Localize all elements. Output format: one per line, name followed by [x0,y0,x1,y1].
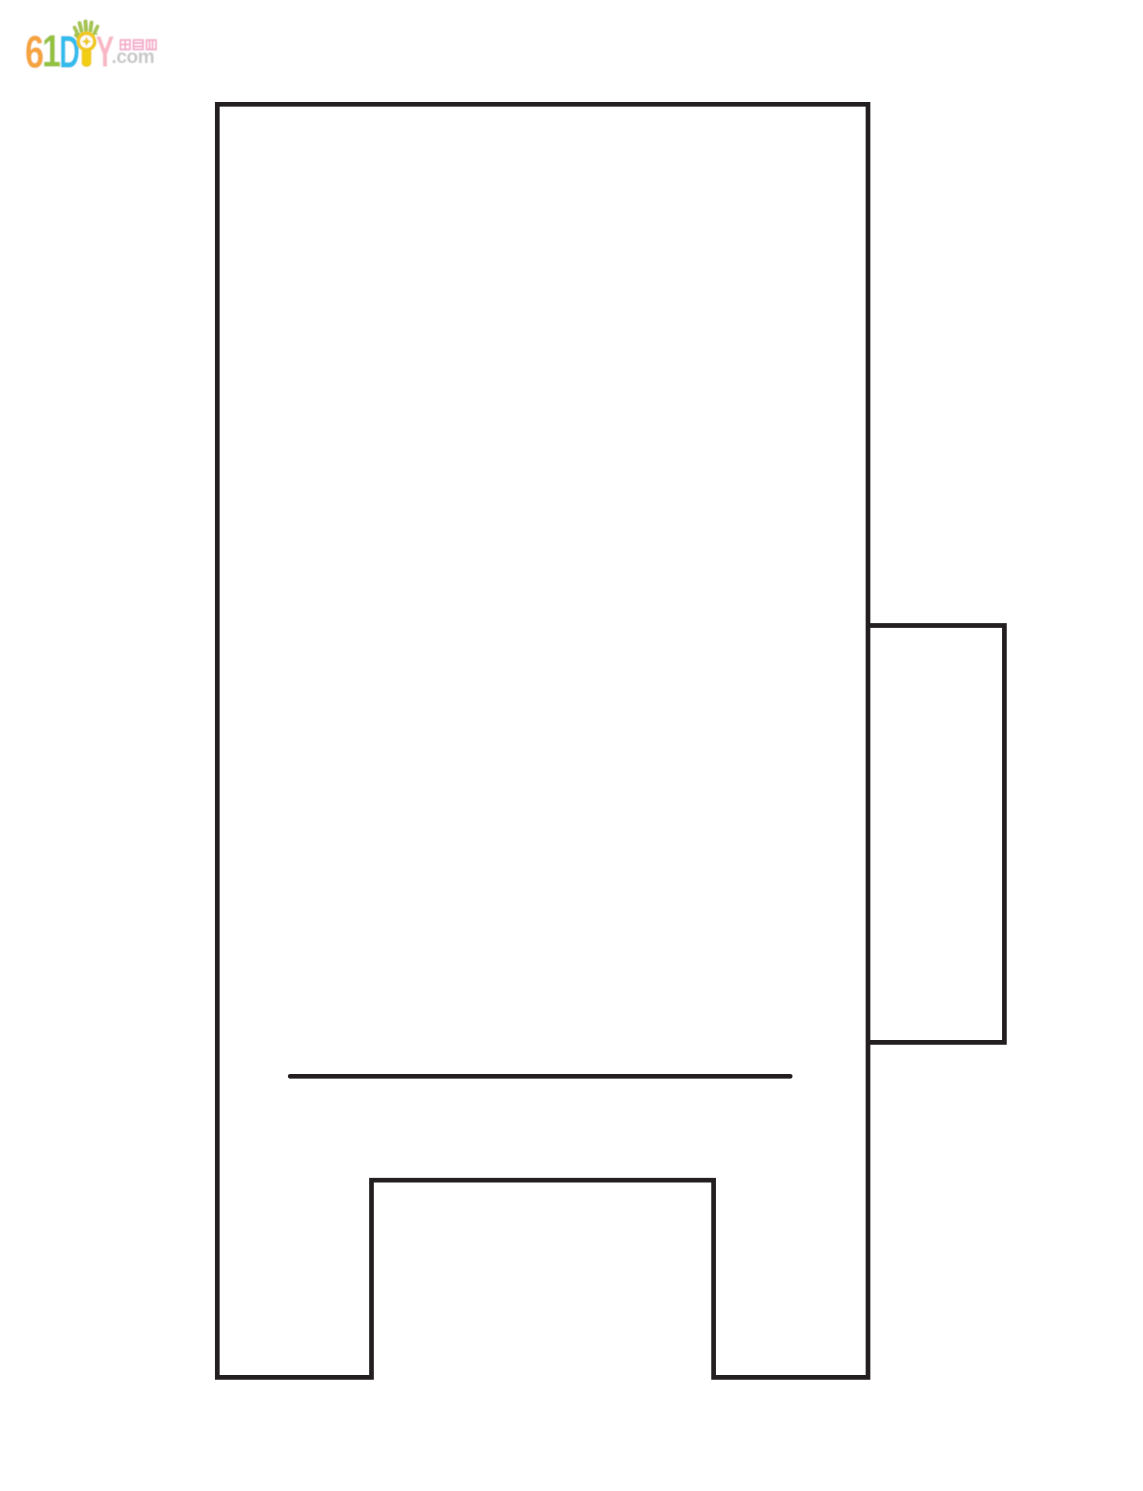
svg-text:6: 6 [25,28,44,78]
svg-text:D: D [59,28,80,78]
svg-text:1: 1 [42,27,61,77]
svg-text:.com: .com [112,47,155,68]
